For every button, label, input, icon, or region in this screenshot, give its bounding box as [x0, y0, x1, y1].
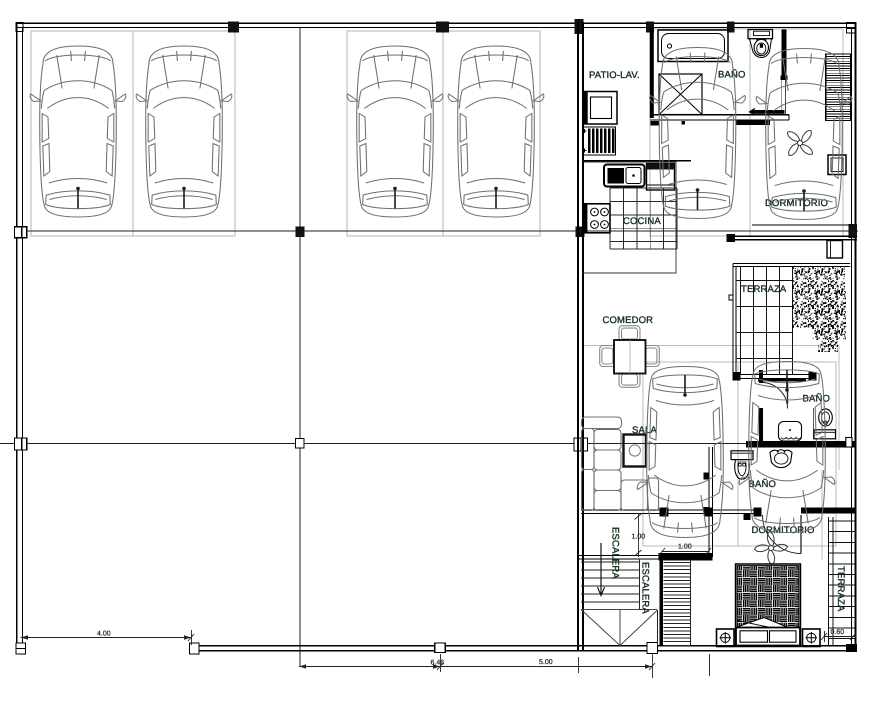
- svg-text:DORMITORIO: DORMITORIO: [765, 198, 828, 209]
- svg-text:TERRAZA: TERRAZA: [741, 284, 787, 295]
- svg-text:PATIO-LAV.: PATIO-LAV.: [589, 70, 640, 81]
- svg-text:TERRAZA: TERRAZA: [835, 566, 846, 612]
- svg-text:6.46: 6.46: [431, 660, 445, 667]
- svg-text:BAÑO: BAÑO: [718, 69, 746, 81]
- svg-text:1.00: 1.00: [678, 544, 692, 551]
- svg-text:0.60: 0.60: [831, 629, 845, 636]
- svg-text:4.00: 4.00: [97, 631, 111, 638]
- svg-text:COMEDOR: COMEDOR: [603, 315, 654, 326]
- svg-text:ESCALERA: ESCALERA: [640, 562, 651, 614]
- svg-text:COCINA: COCINA: [623, 216, 661, 227]
- svg-text:5.00: 5.00: [539, 659, 553, 666]
- svg-text:ESCALERA: ESCALERA: [610, 527, 621, 579]
- svg-text:1.00: 1.00: [632, 534, 646, 541]
